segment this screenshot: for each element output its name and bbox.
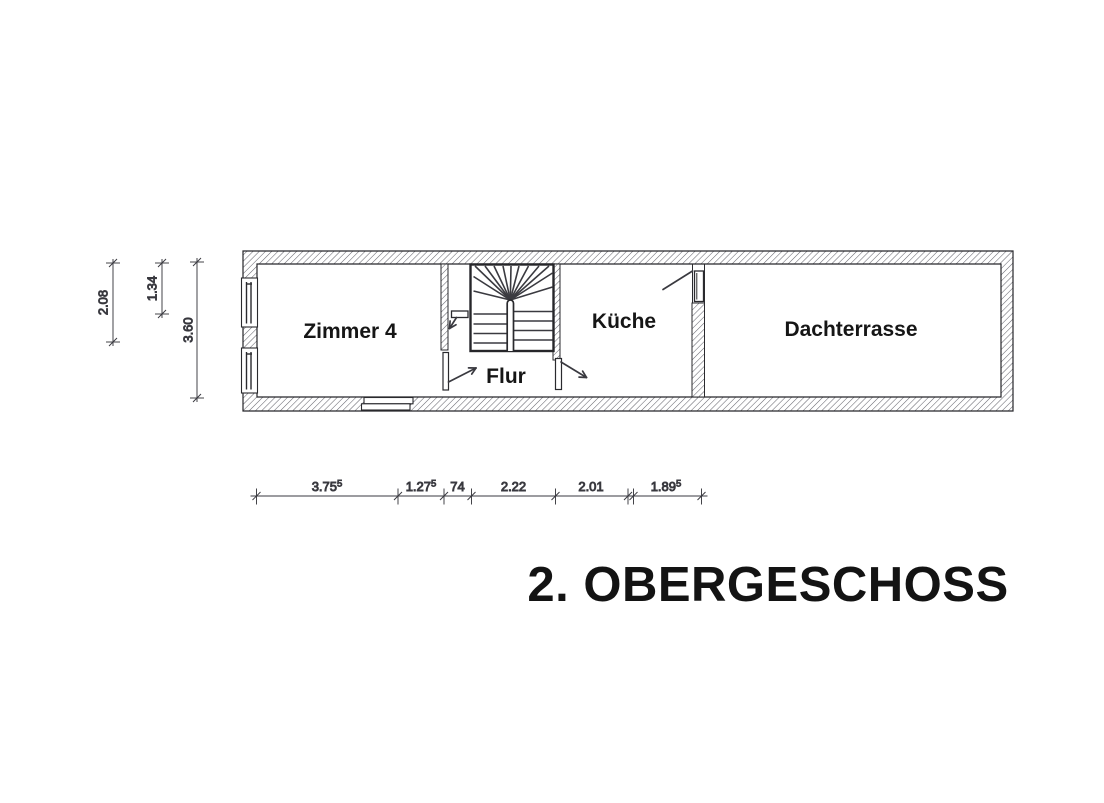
floor-title: 2. OBERGESCHOSS — [527, 558, 1008, 612]
door-arrow-kueche — [561, 362, 587, 378]
dim-label-bottom-1: 3.755 — [312, 479, 343, 495]
door-flur-kueche — [556, 359, 587, 390]
dim-label-bottom-5: 2.01 — [578, 479, 603, 494]
dim-label-left-2: 1.34 — [145, 276, 160, 301]
door-leaf-zimmer4-flur — [443, 353, 449, 391]
window-left-upper — [242, 278, 258, 327]
room-label-dachterrasse: Dachterrasse — [784, 318, 917, 341]
winder-staircase — [471, 265, 554, 352]
door-leaf-flur-kueche — [556, 359, 562, 390]
dimension-left-134: 1.34 — [145, 259, 170, 318]
door-arrow-flur — [449, 368, 477, 382]
floor-plan-page: Zimmer 4 Flur Küche Dachterrasse 3.755 1… — [0, 0, 1104, 803]
dimension-left-360: 3.60 — [181, 258, 205, 402]
dim-label-bottom-4: 2.22 — [501, 479, 526, 494]
room-label-flur: Flur — [486, 365, 526, 388]
dim-label-bottom-2: 1.275 — [406, 479, 437, 495]
door-stair-access — [450, 311, 469, 329]
dim-label-bottom-3: 74 — [450, 479, 464, 494]
dimension-left-208: 2.08 — [96, 259, 121, 346]
stair-newel — [507, 300, 513, 351]
room-label-zimmer-4: Zimmer 4 — [303, 320, 397, 343]
door-dachterrasse — [663, 264, 705, 303]
dim-label-left-1: 2.08 — [96, 290, 111, 315]
door-zimmer4-flur — [443, 353, 476, 391]
dim-label-bottom-6: 1.895 — [651, 479, 682, 495]
dimension-chain-bottom: 3.755 1.275 74 2.22 2.01 1.895 — [251, 479, 708, 505]
door-arrow-stair-access — [450, 318, 457, 329]
door-leaf-dachterrasse — [695, 271, 704, 302]
window-bottom — [362, 398, 414, 411]
partition-wall-zimmer4-flur — [441, 264, 448, 350]
door-leaf-stair-access — [452, 311, 469, 318]
door-swing-dachterrasse — [663, 271, 693, 290]
dim-label-left-3: 3.60 — [181, 317, 196, 342]
partition-wall-kueche-dachterrasse — [692, 303, 705, 397]
window-left-lower — [242, 348, 258, 393]
floor-plan-drawing: Zimmer 4 Flur Küche Dachterrasse 3.755 1… — [0, 0, 1104, 803]
room-label-kueche: Küche — [592, 310, 656, 333]
